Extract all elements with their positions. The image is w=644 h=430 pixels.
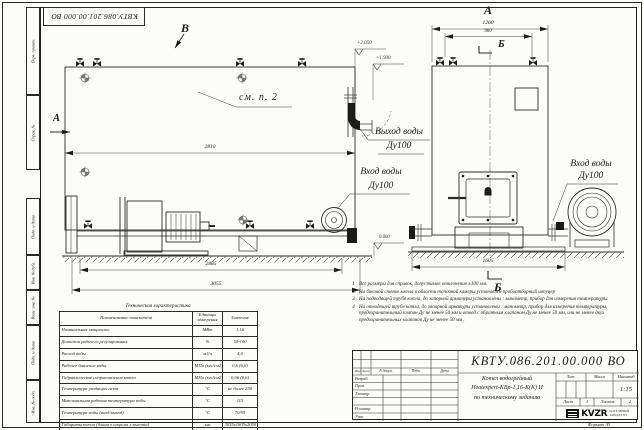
note-number: 3 (348, 297, 359, 304)
spec-cell: 70/95 (223, 408, 258, 420)
spec-row: Гидравлическое сопротивление котлаМПа (к… (60, 372, 258, 384)
note-item: 3 На подводящей трубе котла, до запорной… (348, 297, 638, 304)
view-label-a-top: А (484, 4, 492, 16)
spec-cell: 0,06 (0,6) (223, 372, 258, 384)
kvzr-logo-text: KVZR (581, 409, 607, 419)
titleblock-doc-number: КВТУ.086.201.00.000 ВО (458, 354, 639, 369)
outlet-label: Выход воды (375, 128, 423, 138)
inlet2-label: Вход воды (570, 160, 611, 170)
notes-list: 1 Все размеры для справок, допустимое от… (348, 282, 638, 326)
scale-label: Масштаб (613, 375, 639, 379)
elevation-zero: 0.000 (379, 236, 390, 241)
elevation-top: +2.050 (357, 41, 372, 46)
product-name-line1: Котел водогрейный (459, 375, 555, 384)
boiler-side-view (62, 59, 391, 262)
spec-cell: 0,6 (6,0) (223, 360, 258, 372)
note-number: 2 (348, 290, 359, 297)
dim-front-inner: 960 (484, 30, 491, 35)
sheet-value: 1 (580, 400, 594, 405)
sheets-value: 2 (621, 400, 639, 405)
spec-row: Номинальная мощностьМВт1,16 (60, 325, 258, 337)
titleblock-name: Котел водогрейный Heatexpert-КВр-1,16-К(… (459, 375, 555, 403)
spec-row: Расход водым3/ч4,0 (60, 349, 258, 361)
sig-row-tkontr: Т.контр. (355, 392, 370, 396)
spec-header-name: Наименование показателя (60, 311, 193, 325)
drawing-sheet: Перв. примен. Справ. № Подп. и дата Инв.… (0, 0, 644, 430)
spec-cell: Диапазон рабочего регулирования (60, 337, 193, 349)
dim-front-base: 1605 (483, 259, 494, 265)
spec-cell: 50-100 (223, 337, 258, 349)
spec-cell: Гидравлическое сопротивление котла (60, 372, 193, 384)
spec-header-value: Значение (223, 311, 258, 325)
elevation-marks (355, 49, 404, 256)
front-view-dimensions (412, 25, 565, 279)
outlet-dn-label: Ду100 (387, 142, 412, 152)
sig-row-prov: Пров. (355, 384, 365, 388)
dim-front-width: 1260 (483, 21, 494, 27)
spec-cell: Температура воды (вход/выход) (60, 408, 193, 420)
sheet-label: Лист (556, 400, 580, 404)
note-item: 2 На боковой стенке котла в области топо… (348, 290, 638, 297)
sig-row-utv: Утв. (355, 415, 364, 419)
spec-cell: не более 250 (223, 384, 258, 396)
section-arrows (50, 34, 184, 132)
manufacturer-logo: KVZR КОТЕЛЬНЫЙ ЗАВОД РЭП (556, 406, 639, 421)
spec-row: Температура уходящих газов°Сне более 250 (60, 384, 258, 396)
note-number: 4 (348, 305, 359, 325)
spec-cell: м3/ч (193, 349, 223, 361)
dim-total-length: 3055 (211, 282, 222, 288)
spec-header-units: Единицы измерения (193, 311, 223, 325)
sig-header-list: Лист (361, 370, 371, 373)
format-note: Формат А3 (560, 423, 638, 428)
spec-cell: Максимальная рабочая температура воды (60, 396, 193, 408)
spec-cell: °С (193, 408, 223, 420)
section-label-b-top: Б (498, 40, 505, 51)
spec-row: Диапазон рабочего регулирования%50-100 (60, 337, 258, 349)
scale-value: 1:15 (613, 387, 639, 394)
sheets-label: Листов (594, 400, 621, 404)
spec-header-row: Наименование показателя Единицы измерени… (60, 311, 258, 325)
note-item: 1 Все размеры для справок, допустимое от… (348, 282, 638, 289)
note-text: На подводящей трубе котла, до запорной а… (359, 297, 638, 304)
sig-row-nkontr: Н.контр. (355, 407, 371, 411)
spec-cell: МВт (193, 325, 223, 337)
lit-label: Лит. (556, 375, 586, 379)
inlet-label: Вход воды (360, 168, 401, 178)
spec-cell: МПа (кгс/см2) (193, 360, 223, 372)
view-label-v: В (181, 22, 189, 34)
spec-cell: МПа (кгс/см2) (193, 372, 223, 384)
spec-cell: 115 (223, 396, 258, 408)
dim-base-width: 2885 (206, 262, 217, 268)
sig-header-data: Дата (431, 370, 458, 374)
note-text: На боковой стенке котла в области топочн… (359, 290, 638, 297)
note-number: 1 (348, 282, 359, 289)
kvzr-logo-icon (566, 409, 579, 418)
note-text: На отводящей трубе котла, до запорной ар… (359, 305, 638, 325)
spec-cell: мм (193, 419, 223, 430)
title-block: КВТУ.086.201.00.000 ВО Котел водогрейный… (352, 350, 638, 420)
spec-row: Температура воды (вход/выход)°С70/95 (60, 408, 258, 420)
inlet-dn-label: Ду100 (369, 182, 394, 192)
product-name-line2: Heatexpert-КВр-1,16-К(К) И (459, 384, 555, 393)
spec-table-block: Техническая характеристика Наименование … (59, 303, 257, 430)
kvzr-sub-line2: ЗАВОД РЭП (609, 414, 629, 418)
note-item: 4 На отводящей трубе котла, до запорной … (348, 305, 638, 325)
section-label-a-left: А (53, 114, 60, 125)
spec-cell: 1,16 (223, 325, 258, 337)
spec-cell: 4,0 (223, 349, 258, 361)
spec-row: Габариты котла (длина х ширина х высота)… (60, 419, 258, 430)
see-note-ref: см. п. 2 (239, 93, 278, 103)
spec-cell: % (193, 337, 223, 349)
spec-cell: Номинальная мощность (60, 325, 193, 337)
mass-label: Масса (586, 375, 613, 379)
spec-table-title: Техническая характеристика (59, 303, 257, 309)
elevation-mid: +1.930 (376, 56, 391, 61)
inlet2-dn-label: Ду100 (579, 172, 604, 182)
note-text: Все размеры для справок, допустимое откл… (359, 282, 638, 289)
spec-table: Наименование показателя Единицы измерени… (59, 311, 258, 430)
product-name-line3: по техническому заданию (459, 394, 555, 403)
sig-row-razrab: Разраб. (355, 377, 368, 381)
kvzr-logo-subtext: КОТЕЛЬНЫЙ ЗАВОД РЭП (609, 410, 629, 418)
sig-header-podp: Подп. (401, 370, 431, 374)
dim-side-width: 2810 (205, 145, 216, 151)
spec-cell: Температура уходящих газов (60, 384, 193, 396)
spec-row: Рабочее давление водыМПа (кгс/см2)0,6 (6… (60, 360, 258, 372)
spec-row: Максимальная рабочая температура воды°С1… (60, 396, 258, 408)
boiler-front-view (408, 50, 624, 258)
spec-cell: 3055х1605х2050 (223, 419, 258, 430)
spec-cell: °С (193, 384, 223, 396)
spec-cell: Габариты котла (длина х ширина х высота) (60, 419, 193, 430)
spec-cell: °С (193, 396, 223, 408)
spec-cell: Расход воды (60, 349, 193, 361)
sig-header-ndocum: N докум. (371, 370, 401, 374)
spec-cell: Рабочее давление воды (60, 360, 193, 372)
